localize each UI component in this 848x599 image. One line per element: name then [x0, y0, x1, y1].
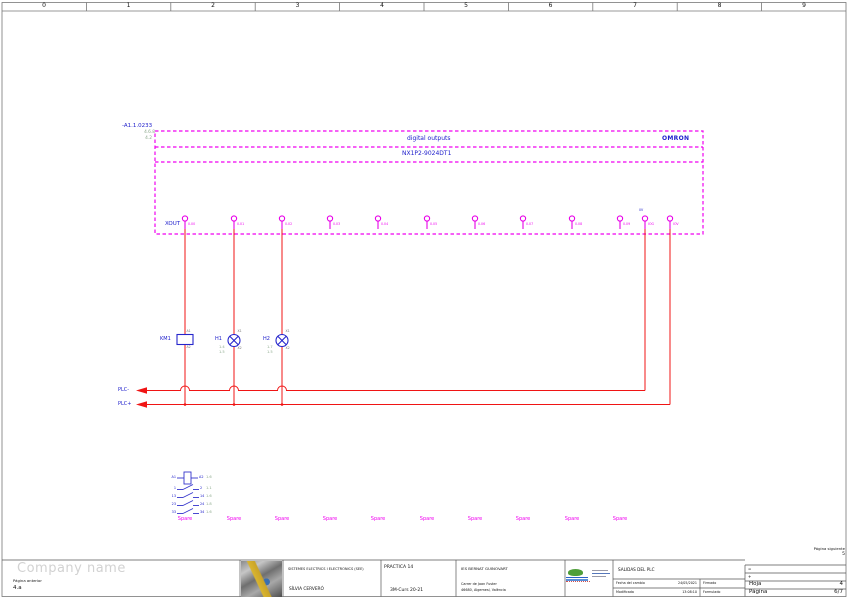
legend-contact-left: 23	[172, 503, 176, 506]
legend-contact-symbol	[177, 493, 199, 498]
school-logo-icon	[568, 569, 583, 576]
terminal-label: 0.03	[333, 223, 340, 226]
legend-contact-ref: 1.1	[206, 487, 212, 491]
department: SISTEMES ELECTRICS I ELECTRONICS (SEE)	[288, 568, 364, 572]
output-terminal-symbols	[182, 216, 672, 229]
connector-name: XOUT	[165, 222, 180, 228]
omron-logo: OMRON	[662, 136, 689, 142]
date-value: 24/05/2021	[678, 582, 697, 585]
terminal-label: IOV	[673, 223, 679, 226]
ruler-number: 2	[211, 3, 215, 9]
legend-symbols	[177, 472, 199, 514]
terminal-label: 0.01	[237, 223, 244, 226]
h1-lamp-symbol	[228, 335, 240, 347]
legend-contact-left: 13	[172, 495, 176, 498]
legend-contact-left: 1	[174, 487, 176, 490]
titleblock-photo	[241, 561, 282, 597]
legend-contact-symbol	[177, 509, 199, 514]
module-ref: 4.2	[145, 137, 152, 141]
ruler-number: 3	[296, 3, 300, 9]
school-name: IES BERNAT GUINOVART	[461, 567, 508, 571]
km1-terminal: A1	[187, 330, 191, 333]
spare-label: Spare	[420, 517, 434, 522]
practice-title: PRACTICA 14	[384, 566, 413, 571]
terminal-label: 0.08	[575, 223, 582, 226]
module-title: digital outputs	[407, 136, 450, 142]
legend-coil-ref: 1.6	[206, 476, 212, 480]
ruler-number: 5	[464, 3, 468, 9]
terminal-label: 0.02	[285, 223, 292, 226]
h2-label: H2	[263, 337, 270, 342]
spare-label: Spare	[227, 517, 241, 522]
school-logo-text-line	[592, 570, 608, 571]
legend-contact-symbol	[177, 501, 199, 506]
signed-label: Firmado	[703, 582, 716, 585]
h1-terminal: X2	[238, 347, 242, 350]
plc-plus-arrow	[136, 401, 147, 408]
km1-terminal: A2	[187, 346, 191, 349]
terminal-label: 0.07	[526, 223, 533, 226]
h2-lamp-symbol	[276, 335, 288, 347]
ruler-number: 9	[802, 3, 806, 9]
school-logo-text-line	[592, 573, 610, 574]
plc-plus-label: PLC+	[117, 402, 132, 407]
h1-ref: 1.4	[219, 346, 225, 350]
page-frame	[2, 3, 846, 597]
legend-contact-ref: 1.8	[206, 503, 212, 507]
module-tag: -A1.1.0233	[122, 124, 152, 130]
module-ref: 4.6.8	[144, 131, 155, 135]
h2-ref: 1.5	[267, 351, 273, 355]
legend-contact-right: 2	[200, 487, 202, 490]
schematic-canvas	[0, 0, 848, 599]
h1-ref: 1.5	[219, 351, 225, 355]
terminal-label: 0.04	[381, 223, 388, 226]
legend-contact-symbol	[177, 485, 199, 490]
form-label: Formulado	[703, 591, 720, 594]
terminal-label: 0.06	[478, 223, 485, 226]
sheet-label: Hoja	[749, 582, 761, 588]
legend-contact-right: 34	[200, 511, 204, 514]
h2-ref: 1.7	[267, 346, 273, 350]
school-logo-icon	[566, 577, 588, 578]
date-label: Fecha del cambio	[616, 582, 645, 585]
sheet-title: SALIDAS DEL PLC	[618, 568, 655, 572]
plus-label: +	[748, 575, 751, 579]
legend-coil-left: A1	[172, 476, 176, 479]
school-address2: 46680, Algemesí, València	[461, 589, 506, 592]
legend-coil-symbol	[177, 472, 198, 484]
legend-contact-ref: 1.6	[206, 511, 212, 515]
plc-module-box	[155, 131, 703, 234]
terminal-label: 0.00	[188, 223, 195, 226]
sheet-value: 4	[840, 582, 844, 588]
module-model: NX1P2-9024DT1	[402, 151, 451, 157]
spare-label: Spare	[323, 517, 337, 522]
h1-label: H1	[215, 337, 222, 342]
ruler-number: 8	[718, 3, 722, 9]
company-name: Company name	[17, 562, 126, 575]
km1-label: KM1	[160, 337, 171, 342]
spare-label: Spare	[468, 517, 482, 522]
ruler-number: 4	[380, 3, 384, 9]
ruler-number: 1	[127, 3, 131, 9]
spare-label: Spare	[371, 517, 385, 522]
wires	[147, 229, 670, 405]
modified-value: 13:08:10	[682, 591, 697, 594]
legend-contact-right: 14	[200, 495, 204, 498]
h1-terminal: X1	[238, 330, 242, 333]
legend-coil-right: A2	[199, 476, 203, 479]
plc-minus-label: PLC-	[117, 388, 130, 393]
next-page-label: Página siguiente	[814, 547, 845, 551]
author: SÍLVIA CERVERÓ	[289, 588, 324, 592]
eq-label: =	[748, 567, 751, 571]
ruler-number: 6	[549, 3, 553, 9]
h2-terminal: X1	[286, 330, 290, 333]
spare-label: Spare	[178, 517, 192, 522]
legend-contact-left: 33	[172, 511, 176, 514]
ruler-number: 7	[633, 3, 637, 9]
common-sublabel: 0V	[639, 209, 643, 212]
spare-label: Spare	[275, 517, 289, 522]
school-logo-text-line	[592, 576, 606, 577]
km1-coil-symbol	[177, 335, 193, 345]
next-page-value: 5	[842, 553, 845, 558]
plc-minus-arrow	[136, 387, 147, 394]
modified-label: Modificada	[616, 591, 634, 594]
legend-contact-ref: 1.6	[206, 495, 212, 499]
legend-contact-right: 24	[200, 503, 204, 506]
prev-page-label: Página anterior	[13, 579, 42, 583]
h2-terminal: X2	[286, 347, 290, 350]
terminal-label: IOG	[648, 223, 654, 226]
school-logo-icon	[566, 581, 590, 582]
pagenum-label: Página	[749, 590, 767, 596]
school-address1: Carrer de Joan Fuster	[461, 583, 497, 586]
pagenum-value: 6/7	[834, 590, 843, 596]
spare-label: Spare	[613, 517, 627, 522]
ruler-number: 0	[42, 3, 46, 9]
spare-label: Spare	[565, 517, 579, 522]
plc-minus-rail	[147, 386, 645, 391]
terminal-label: 0.09	[623, 223, 630, 226]
course: 3M-Curs 20-21	[390, 589, 423, 594]
spare-label: Spare	[516, 517, 530, 522]
terminal-label: 0.05	[430, 223, 437, 226]
prev-page-value: 4.a	[13, 586, 22, 592]
